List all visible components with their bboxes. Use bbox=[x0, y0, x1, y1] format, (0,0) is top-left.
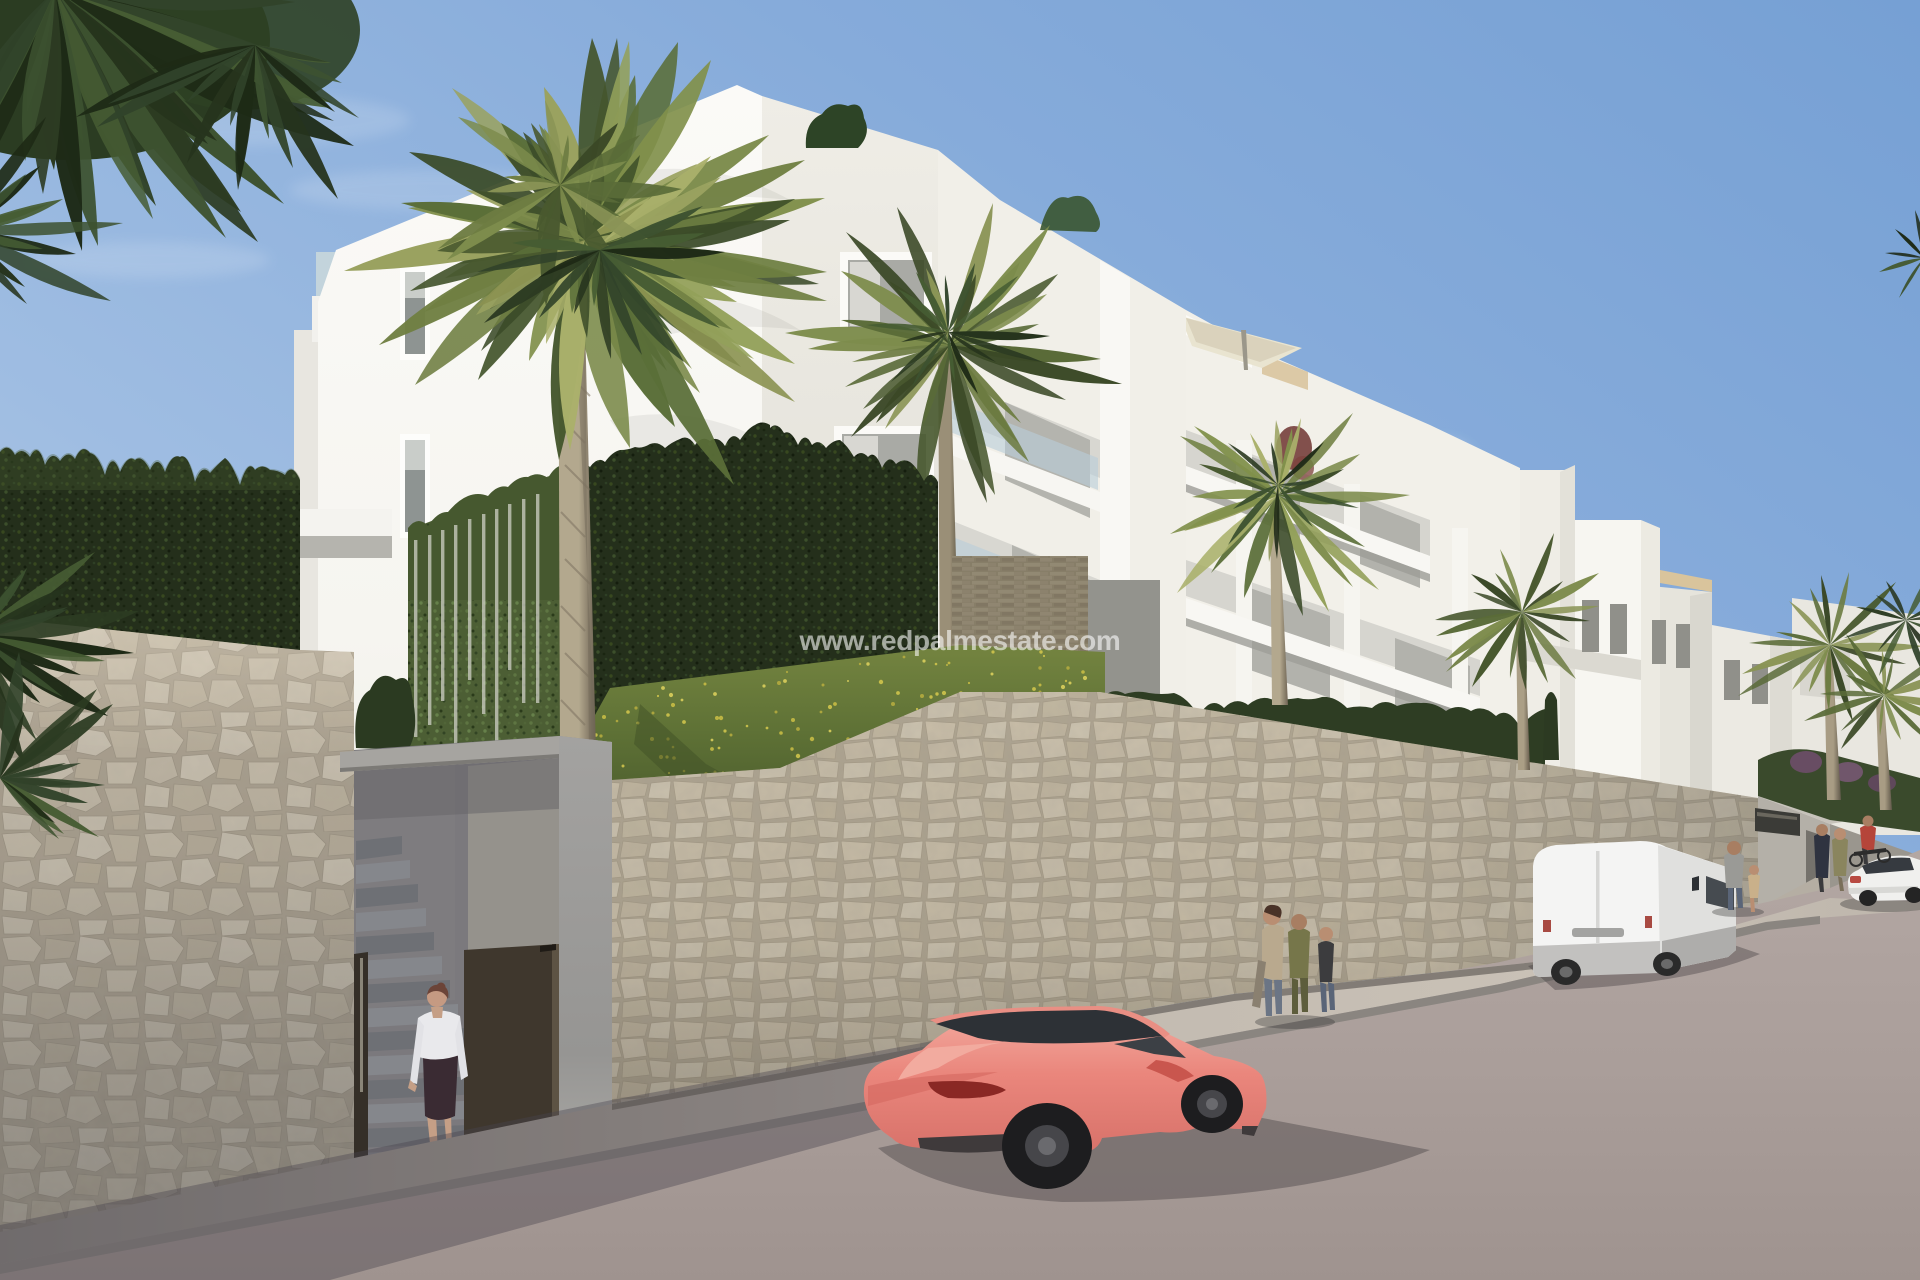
svg-text:www.redpalmestate.com: www.redpalmestate.com bbox=[799, 625, 1121, 656]
